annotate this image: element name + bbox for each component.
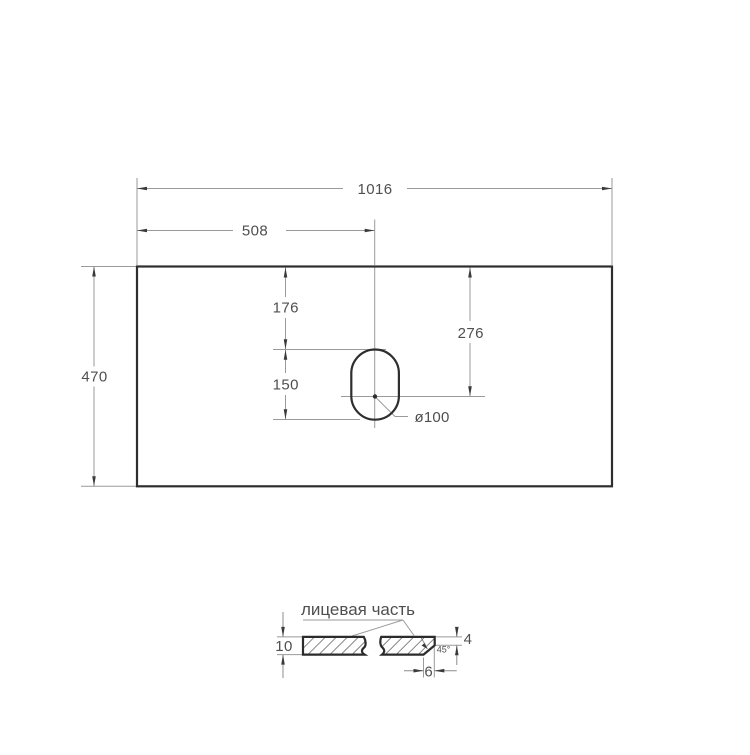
svg-text:276: 276	[458, 325, 484, 342]
svg-text:6: 6	[424, 664, 433, 681]
svg-text:150: 150	[273, 377, 299, 394]
svg-text:1016: 1016	[358, 181, 393, 198]
svg-text:45°: 45°	[437, 644, 451, 654]
svg-text:10: 10	[275, 638, 293, 655]
svg-text:176: 176	[273, 300, 299, 317]
svg-text:508: 508	[242, 223, 268, 240]
svg-text:4: 4	[464, 631, 473, 648]
svg-text:лицевая часть: лицевая часть	[301, 600, 415, 619]
svg-text:470: 470	[81, 368, 107, 385]
svg-text:ø100: ø100	[415, 409, 450, 426]
